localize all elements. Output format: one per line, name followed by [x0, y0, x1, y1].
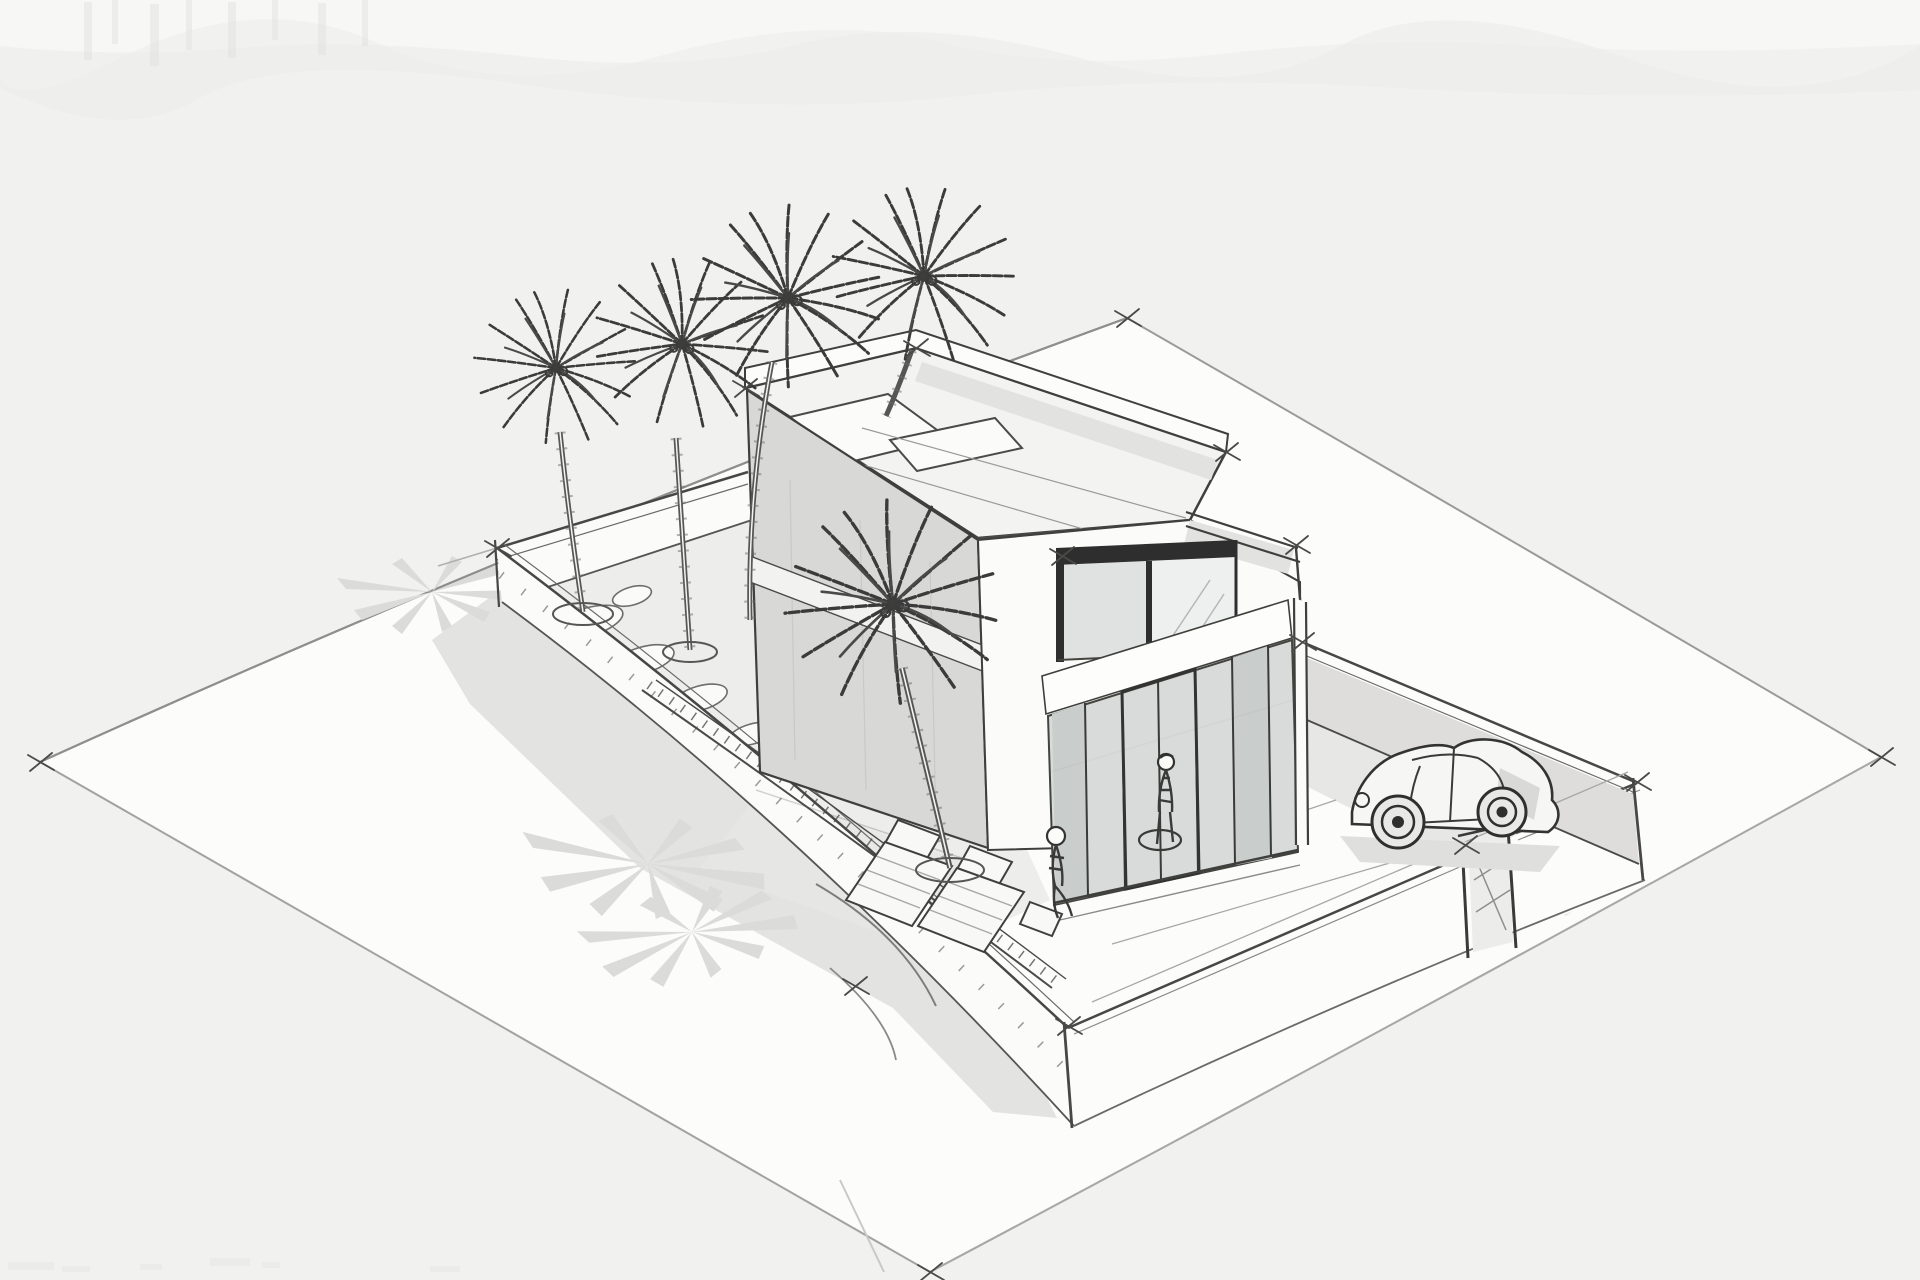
- sketch-canvas: [0, 0, 1920, 1280]
- sketch-page: [0, 0, 1920, 1280]
- corner-post: [1294, 598, 1308, 845]
